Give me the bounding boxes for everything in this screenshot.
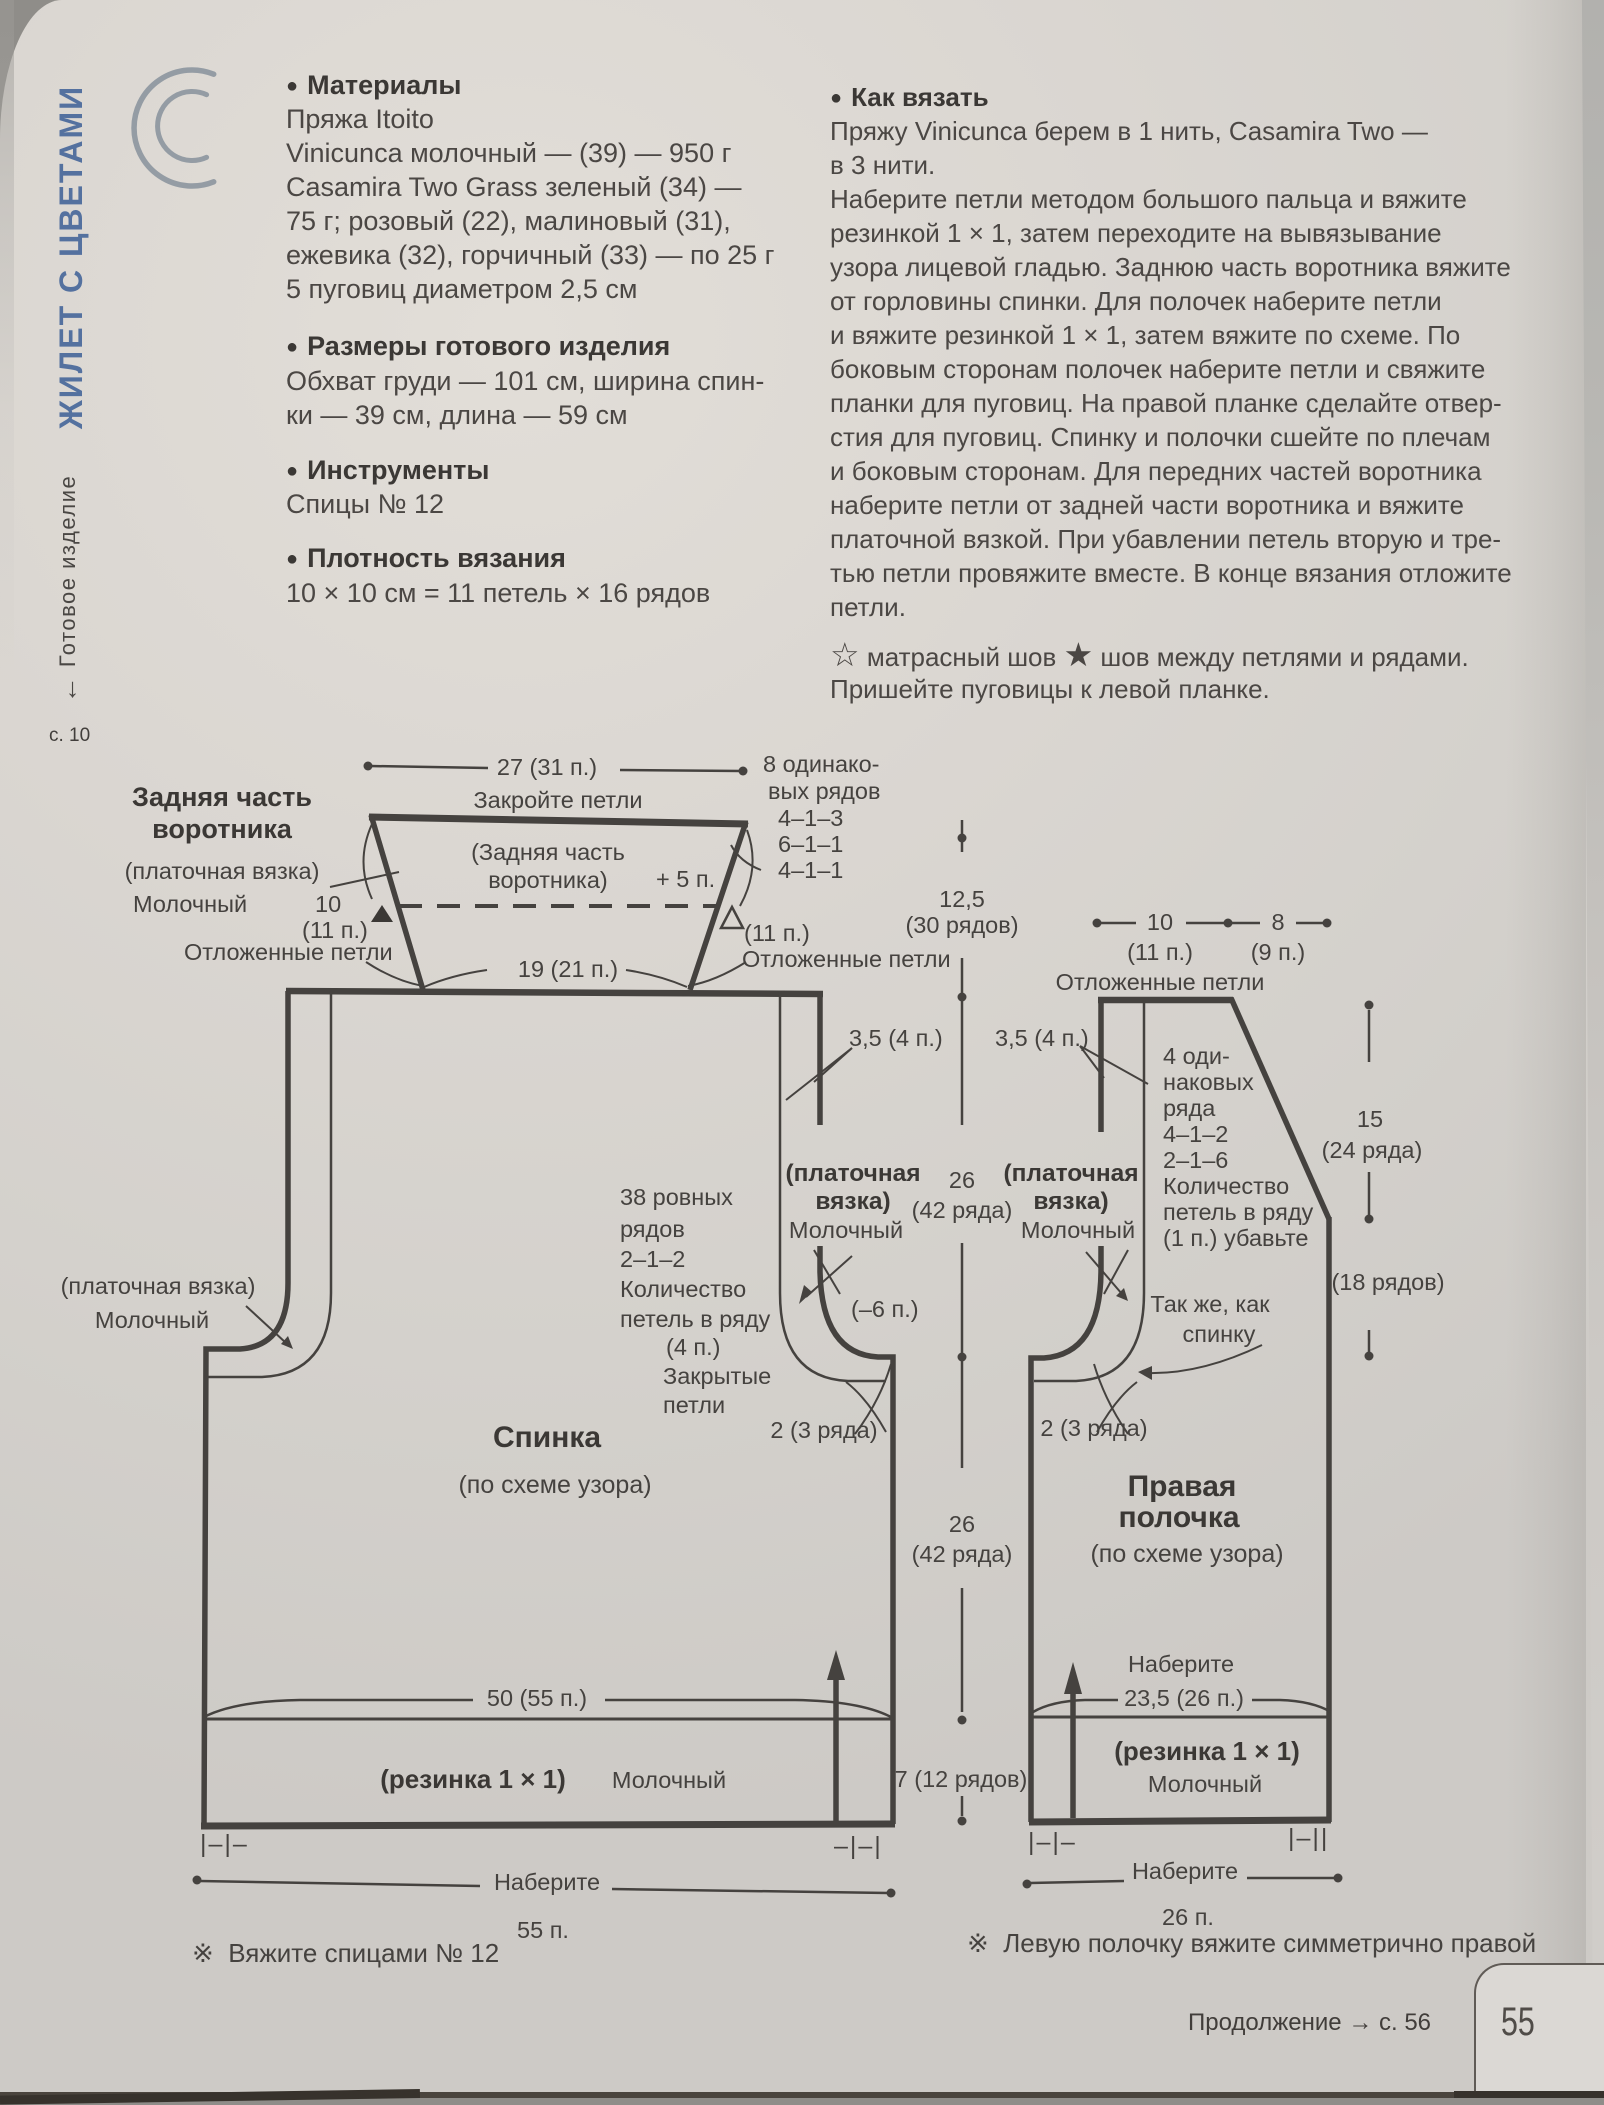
svg-text:26: 26 bbox=[949, 1167, 975, 1193]
svg-text:Наберите: Наберите bbox=[1128, 1651, 1234, 1677]
svg-text:(платочная: (платочная bbox=[785, 1160, 920, 1187]
svg-text:(платочная: (платочная bbox=[1003, 1160, 1138, 1187]
svg-text:(Задняя часть: (Задняя часть bbox=[471, 839, 625, 865]
svg-text:Отложенные петли: Отложенные петли bbox=[1056, 969, 1265, 995]
svg-text:Наберите: Наберите bbox=[1132, 1858, 1238, 1884]
svg-text:7 (12 рядов): 7 (12 рядов) bbox=[895, 1766, 1028, 1792]
svg-text:19 (21 п.): 19 (21 п.) bbox=[518, 956, 618, 982]
svg-text:петель в ряду: петель в ряду bbox=[620, 1306, 771, 1332]
svg-text:4–1–3: 4–1–3 bbox=[778, 805, 843, 831]
svg-text:полочка: полочка bbox=[1118, 1501, 1239, 1534]
svg-text:10: 10 bbox=[315, 891, 341, 917]
svg-text:4–1–2: 4–1–2 bbox=[1163, 1121, 1228, 1147]
svg-text:3,5 (4 п.): 3,5 (4 п.) bbox=[995, 1025, 1089, 1051]
svg-text:50 (55 п.): 50 (55 п.) bbox=[487, 1685, 587, 1711]
svg-text:Молочный: Молочный bbox=[1148, 1771, 1262, 1797]
svg-text:рядов: рядов bbox=[620, 1216, 685, 1242]
svg-text:(11 п.): (11 п.) bbox=[1127, 939, 1193, 965]
svg-text:Закройте петли: Закройте петли bbox=[473, 787, 642, 813]
svg-text:|–|–: |–|– bbox=[1028, 1828, 1077, 1856]
svg-text:Закрытые: Закрытые bbox=[663, 1363, 771, 1389]
svg-text:Молочный: Молочный bbox=[95, 1307, 209, 1333]
svg-text:(11 п.): (11 п.) bbox=[744, 920, 810, 946]
svg-text:(по схеме узора): (по схеме узора) bbox=[1090, 1540, 1283, 1568]
svg-text:спинку: спинку bbox=[1183, 1321, 1256, 1347]
svg-text:※ Левую полочку вяжите симмет: ※ Левую полочку вяжите симметрично право… bbox=[967, 1928, 1536, 1958]
svg-text:Молочный: Молочный bbox=[1021, 1217, 1135, 1243]
svg-text:(платочная вязка): (платочная вязка) bbox=[125, 858, 320, 884]
svg-text:10: 10 bbox=[1147, 909, 1173, 935]
svg-text:(9 п.): (9 п.) bbox=[1251, 939, 1306, 965]
svg-text:3,5 (4 п.): 3,5 (4 п.) bbox=[849, 1025, 943, 1051]
svg-text:27 (31 п.): 27 (31 п.) bbox=[497, 754, 597, 780]
svg-text:Отложенные петли: Отложенные петли bbox=[184, 939, 393, 965]
svg-text:6–1–1: 6–1–1 bbox=[778, 831, 843, 857]
svg-text:петель в ряду: петель в ряду bbox=[1163, 1199, 1314, 1225]
svg-text:38 ровных: 38 ровных bbox=[620, 1184, 733, 1210]
svg-text:|–||: |–|| bbox=[1288, 1824, 1329, 1852]
svg-text:Отложенные петли: Отложенные петли bbox=[742, 946, 951, 972]
svg-text:вых рядов: вых рядов bbox=[768, 778, 880, 804]
svg-text:15: 15 bbox=[1357, 1106, 1383, 1132]
svg-text:(платочная вязка): (платочная вязка) bbox=[61, 1273, 256, 1299]
svg-text:(резинка 1 × 1): (резинка 1 × 1) bbox=[1114, 1736, 1300, 1766]
svg-text:4 оди-: 4 оди- bbox=[1163, 1043, 1230, 1069]
svg-text:вязка): вязка) bbox=[815, 1188, 890, 1215]
svg-text:Правая: Правая bbox=[1128, 1470, 1237, 1503]
svg-text:(42 ряда): (42 ряда) bbox=[912, 1197, 1013, 1223]
svg-text:Спинка: Спинка bbox=[493, 1421, 601, 1454]
svg-text:(42 ряда): (42 ряда) bbox=[912, 1541, 1013, 1567]
svg-text:8: 8 bbox=[1271, 909, 1284, 935]
svg-text:|–|–: |–|– bbox=[200, 1830, 249, 1858]
svg-text:Наберите: Наберите bbox=[494, 1869, 600, 1895]
svg-text:(30 рядов): (30 рядов) bbox=[905, 912, 1018, 938]
svg-text:(резинка 1 × 1): (резинка 1 × 1) bbox=[380, 1764, 566, 1794]
svg-text:12,5: 12,5 bbox=[939, 886, 985, 912]
svg-text:(1 п.) убавьте: (1 п.) убавьте bbox=[1163, 1225, 1309, 1251]
svg-text:(18 рядов): (18 рядов) bbox=[1331, 1269, 1444, 1295]
svg-text:55 п.: 55 п. bbox=[517, 1917, 569, 1943]
svg-text:петли: петли bbox=[663, 1392, 725, 1418]
svg-text:воротника: воротника bbox=[152, 814, 293, 844]
svg-text:2 (3 ряда): 2 (3 ряда) bbox=[770, 1417, 877, 1443]
svg-text:(–6 п.): (–6 п.) bbox=[851, 1296, 919, 1322]
svg-text:воротника): воротника) bbox=[488, 867, 607, 893]
svg-text:26 п.: 26 п. bbox=[1162, 1904, 1214, 1930]
svg-text:(по схеме узора): (по схеме узора) bbox=[458, 1471, 651, 1499]
svg-text:+ 5 п.: + 5 п. bbox=[656, 866, 715, 892]
svg-text:2 (3 ряда): 2 (3 ряда) bbox=[1040, 1415, 1147, 1441]
svg-text:Молочный: Молочный bbox=[789, 1217, 903, 1243]
svg-text:2–1–2: 2–1–2 bbox=[620, 1246, 685, 1272]
svg-text:26: 26 bbox=[949, 1511, 975, 1537]
svg-text:Так же, как: Так же, как bbox=[1150, 1291, 1270, 1317]
svg-text:4–1–1: 4–1–1 bbox=[778, 857, 843, 883]
svg-text:※ Вяжите спицами № 12: ※ Вяжите спицами № 12 bbox=[192, 1938, 499, 1968]
svg-text:Молочный: Молочный bbox=[612, 1767, 726, 1793]
svg-text:наковых: наковых bbox=[1163, 1069, 1254, 1095]
svg-text:Задняя часть: Задняя часть bbox=[132, 782, 312, 812]
svg-text:вязка): вязка) bbox=[1033, 1188, 1108, 1215]
svg-text:8 одинако-: 8 одинако- bbox=[763, 751, 879, 777]
svg-text:Молочный: Молочный bbox=[133, 891, 247, 917]
svg-text:–|–|: –|–| bbox=[834, 1832, 883, 1860]
svg-text:Количество: Количество bbox=[1163, 1173, 1289, 1199]
svg-text:ряда: ряда bbox=[1163, 1095, 1216, 1121]
svg-text:23,5 (26 п.): 23,5 (26 п.) bbox=[1124, 1685, 1244, 1711]
svg-text:(4 п.): (4 п.) bbox=[666, 1334, 721, 1360]
svg-text:(24 ряда): (24 ряда) bbox=[1322, 1137, 1423, 1163]
svg-text:2–1–6: 2–1–6 bbox=[1163, 1147, 1228, 1173]
svg-text:Количество: Количество bbox=[620, 1276, 746, 1302]
